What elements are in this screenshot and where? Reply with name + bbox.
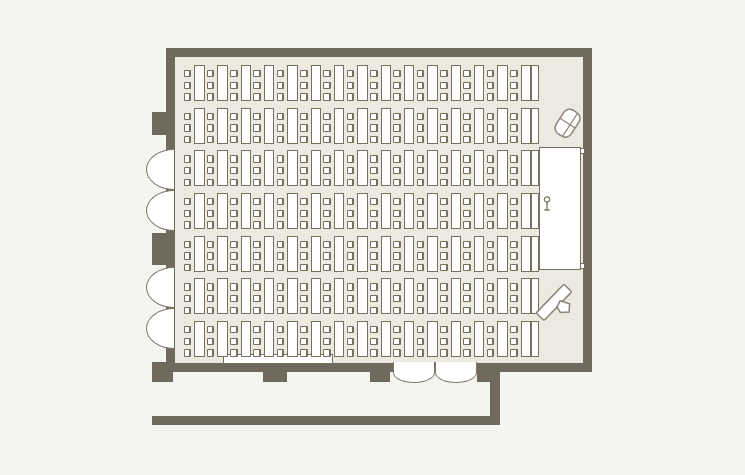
chair[interactable] bbox=[393, 210, 401, 217]
chair[interactable] bbox=[230, 167, 238, 174]
chair[interactable] bbox=[230, 113, 238, 120]
chair[interactable] bbox=[253, 307, 261, 314]
table[interactable] bbox=[451, 108, 462, 144]
chair[interactable] bbox=[277, 124, 285, 131]
table[interactable] bbox=[217, 321, 228, 357]
chair[interactable] bbox=[370, 124, 378, 131]
chair[interactable] bbox=[417, 241, 425, 248]
chair[interactable] bbox=[347, 82, 355, 89]
chair[interactable] bbox=[510, 136, 518, 143]
table[interactable] bbox=[427, 150, 438, 186]
chair[interactable] bbox=[370, 210, 378, 217]
projector-icon[interactable] bbox=[545, 102, 589, 146]
table[interactable] bbox=[311, 65, 322, 101]
chair[interactable] bbox=[510, 179, 518, 186]
chair[interactable] bbox=[300, 179, 308, 186]
chair[interactable] bbox=[184, 124, 192, 131]
chair[interactable] bbox=[440, 283, 448, 290]
table[interactable] bbox=[474, 150, 485, 186]
chair[interactable] bbox=[347, 198, 355, 205]
chair[interactable] bbox=[440, 82, 448, 89]
table[interactable] bbox=[474, 65, 485, 101]
chair[interactable] bbox=[184, 338, 192, 345]
chair[interactable] bbox=[184, 349, 192, 356]
chair[interactable] bbox=[277, 82, 285, 89]
chair[interactable] bbox=[463, 221, 471, 228]
table[interactable] bbox=[381, 193, 392, 229]
table[interactable] bbox=[381, 65, 392, 101]
chair[interactable] bbox=[184, 210, 192, 217]
chair[interactable] bbox=[253, 167, 261, 174]
chair[interactable] bbox=[230, 307, 238, 314]
chair[interactable] bbox=[347, 338, 355, 345]
chair[interactable] bbox=[463, 241, 471, 248]
chair[interactable] bbox=[207, 349, 215, 356]
chair[interactable] bbox=[463, 136, 471, 143]
table[interactable] bbox=[474, 278, 485, 314]
chair[interactable] bbox=[370, 167, 378, 174]
chair[interactable] bbox=[417, 167, 425, 174]
table[interactable] bbox=[451, 236, 462, 272]
chair[interactable] bbox=[300, 136, 308, 143]
chair[interactable] bbox=[440, 167, 448, 174]
chair[interactable] bbox=[253, 295, 261, 302]
chair[interactable] bbox=[253, 113, 261, 120]
chair[interactable] bbox=[417, 82, 425, 89]
table[interactable] bbox=[334, 193, 345, 229]
chair[interactable] bbox=[370, 338, 378, 345]
chair[interactable] bbox=[487, 198, 495, 205]
chair[interactable] bbox=[347, 210, 355, 217]
chair[interactable] bbox=[487, 241, 495, 248]
table[interactable] bbox=[334, 108, 345, 144]
chair[interactable] bbox=[253, 252, 261, 259]
chair[interactable] bbox=[417, 326, 425, 333]
chair[interactable] bbox=[440, 338, 448, 345]
chair[interactable] bbox=[207, 307, 215, 314]
chair[interactable] bbox=[370, 179, 378, 186]
chair[interactable] bbox=[253, 264, 261, 271]
chair[interactable] bbox=[510, 307, 518, 314]
chair[interactable] bbox=[300, 93, 308, 100]
chair[interactable] bbox=[300, 221, 308, 228]
chair[interactable] bbox=[487, 295, 495, 302]
chair[interactable] bbox=[463, 82, 471, 89]
chair[interactable] bbox=[230, 252, 238, 259]
chair[interactable] bbox=[347, 264, 355, 271]
chair[interactable] bbox=[370, 155, 378, 162]
chair[interactable] bbox=[253, 221, 261, 228]
table[interactable] bbox=[357, 236, 368, 272]
chair[interactable] bbox=[440, 124, 448, 131]
chair[interactable] bbox=[487, 113, 495, 120]
chair[interactable] bbox=[253, 70, 261, 77]
chair[interactable] bbox=[347, 349, 355, 356]
chair[interactable] bbox=[487, 264, 495, 271]
table[interactable] bbox=[311, 278, 322, 314]
chair[interactable] bbox=[323, 264, 331, 271]
chair[interactable] bbox=[463, 283, 471, 290]
table[interactable] bbox=[404, 321, 415, 357]
chair[interactable] bbox=[440, 179, 448, 186]
chair[interactable] bbox=[207, 179, 215, 186]
chair[interactable] bbox=[207, 264, 215, 271]
table[interactable] bbox=[194, 150, 205, 186]
chair[interactable] bbox=[510, 283, 518, 290]
table[interactable] bbox=[427, 321, 438, 357]
chair[interactable] bbox=[207, 167, 215, 174]
table[interactable] bbox=[334, 150, 345, 186]
chair[interactable] bbox=[323, 307, 331, 314]
chair[interactable] bbox=[323, 82, 331, 89]
chair[interactable] bbox=[323, 155, 331, 162]
chair[interactable] bbox=[300, 264, 308, 271]
chair[interactable] bbox=[487, 136, 495, 143]
chair[interactable] bbox=[510, 124, 518, 131]
table[interactable] bbox=[194, 278, 205, 314]
chair[interactable] bbox=[510, 338, 518, 345]
chair[interactable] bbox=[393, 70, 401, 77]
chair[interactable] bbox=[184, 198, 192, 205]
chair[interactable] bbox=[277, 167, 285, 174]
chair[interactable] bbox=[510, 167, 518, 174]
chair[interactable] bbox=[277, 93, 285, 100]
table[interactable] bbox=[287, 108, 298, 144]
chair[interactable] bbox=[323, 252, 331, 259]
chair[interactable] bbox=[440, 326, 448, 333]
chair[interactable] bbox=[300, 113, 308, 120]
table[interactable] bbox=[194, 65, 205, 101]
chair[interactable] bbox=[277, 221, 285, 228]
chair[interactable] bbox=[347, 307, 355, 314]
table[interactable] bbox=[404, 65, 415, 101]
chair[interactable] bbox=[487, 210, 495, 217]
table[interactable] bbox=[194, 236, 205, 272]
chair[interactable] bbox=[347, 155, 355, 162]
chair[interactable] bbox=[370, 198, 378, 205]
chair[interactable] bbox=[323, 198, 331, 205]
table[interactable] bbox=[497, 321, 508, 357]
chair[interactable] bbox=[417, 283, 425, 290]
chair[interactable] bbox=[277, 326, 285, 333]
chair[interactable] bbox=[487, 252, 495, 259]
chair[interactable] bbox=[300, 326, 308, 333]
chair[interactable] bbox=[393, 295, 401, 302]
chair[interactable] bbox=[323, 295, 331, 302]
table[interactable] bbox=[451, 321, 462, 357]
table[interactable] bbox=[497, 236, 508, 272]
chair[interactable] bbox=[230, 93, 238, 100]
table[interactable] bbox=[427, 278, 438, 314]
chair[interactable] bbox=[207, 124, 215, 131]
chair[interactable] bbox=[440, 241, 448, 248]
chair[interactable] bbox=[393, 93, 401, 100]
chair[interactable] bbox=[393, 198, 401, 205]
chair[interactable] bbox=[463, 264, 471, 271]
chair[interactable] bbox=[417, 295, 425, 302]
chair[interactable] bbox=[184, 179, 192, 186]
table[interactable] bbox=[287, 150, 298, 186]
table[interactable] bbox=[194, 193, 205, 229]
chair[interactable] bbox=[440, 93, 448, 100]
table[interactable] bbox=[334, 65, 345, 101]
chair[interactable] bbox=[207, 136, 215, 143]
table[interactable] bbox=[521, 321, 532, 357]
chair[interactable] bbox=[184, 136, 192, 143]
chair[interactable] bbox=[440, 155, 448, 162]
chair[interactable] bbox=[184, 326, 192, 333]
chair[interactable] bbox=[463, 295, 471, 302]
chair[interactable] bbox=[323, 326, 331, 333]
chair[interactable] bbox=[393, 349, 401, 356]
chair[interactable] bbox=[207, 155, 215, 162]
chair[interactable] bbox=[393, 264, 401, 271]
chair[interactable] bbox=[230, 221, 238, 228]
chair[interactable] bbox=[347, 167, 355, 174]
chair[interactable] bbox=[370, 136, 378, 143]
chair[interactable] bbox=[323, 124, 331, 131]
table[interactable] bbox=[264, 108, 275, 144]
chair[interactable] bbox=[347, 113, 355, 120]
chair[interactable] bbox=[393, 113, 401, 120]
chair[interactable] bbox=[370, 113, 378, 120]
chair[interactable] bbox=[253, 241, 261, 248]
table[interactable] bbox=[497, 278, 508, 314]
table[interactable] bbox=[381, 236, 392, 272]
chair[interactable] bbox=[253, 283, 261, 290]
table[interactable] bbox=[521, 150, 532, 186]
chair[interactable] bbox=[347, 136, 355, 143]
chair[interactable] bbox=[230, 338, 238, 345]
chair[interactable] bbox=[370, 252, 378, 259]
chair[interactable] bbox=[253, 326, 261, 333]
chair[interactable] bbox=[463, 179, 471, 186]
chair[interactable] bbox=[184, 155, 192, 162]
table[interactable] bbox=[241, 150, 252, 186]
chair[interactable] bbox=[347, 124, 355, 131]
table[interactable] bbox=[217, 278, 228, 314]
chair[interactable] bbox=[253, 198, 261, 205]
table[interactable] bbox=[217, 108, 228, 144]
chair[interactable] bbox=[417, 198, 425, 205]
chair[interactable] bbox=[440, 295, 448, 302]
chair[interactable] bbox=[230, 295, 238, 302]
table[interactable] bbox=[357, 278, 368, 314]
chair[interactable] bbox=[463, 167, 471, 174]
projection-screen-icon[interactable] bbox=[531, 278, 583, 324]
chair[interactable] bbox=[463, 349, 471, 356]
table[interactable] bbox=[451, 193, 462, 229]
chair[interactable] bbox=[253, 210, 261, 217]
chair[interactable] bbox=[277, 264, 285, 271]
chair[interactable] bbox=[393, 241, 401, 248]
chair[interactable] bbox=[300, 349, 308, 356]
chair[interactable] bbox=[277, 70, 285, 77]
chair[interactable] bbox=[510, 113, 518, 120]
table[interactable] bbox=[404, 150, 415, 186]
table[interactable] bbox=[451, 150, 462, 186]
chair[interactable] bbox=[230, 82, 238, 89]
chair[interactable] bbox=[347, 93, 355, 100]
chair[interactable] bbox=[487, 70, 495, 77]
chair[interactable] bbox=[440, 252, 448, 259]
chair[interactable] bbox=[184, 82, 192, 89]
table[interactable] bbox=[427, 65, 438, 101]
table[interactable] bbox=[474, 236, 485, 272]
chair[interactable] bbox=[510, 93, 518, 100]
chair[interactable] bbox=[230, 349, 238, 356]
chair[interactable] bbox=[510, 241, 518, 248]
chair[interactable] bbox=[300, 124, 308, 131]
table[interactable] bbox=[241, 236, 252, 272]
table[interactable] bbox=[521, 65, 532, 101]
chair[interactable] bbox=[463, 307, 471, 314]
chair[interactable] bbox=[393, 179, 401, 186]
chair[interactable] bbox=[207, 221, 215, 228]
chair[interactable] bbox=[463, 326, 471, 333]
table[interactable] bbox=[427, 193, 438, 229]
chair[interactable] bbox=[417, 155, 425, 162]
chair[interactable] bbox=[463, 93, 471, 100]
table[interactable] bbox=[357, 65, 368, 101]
chair[interactable] bbox=[393, 82, 401, 89]
table[interactable] bbox=[241, 278, 252, 314]
chair[interactable] bbox=[370, 221, 378, 228]
chair[interactable] bbox=[300, 283, 308, 290]
table[interactable] bbox=[497, 108, 508, 144]
chair[interactable] bbox=[277, 210, 285, 217]
chair[interactable] bbox=[510, 326, 518, 333]
chair[interactable] bbox=[207, 241, 215, 248]
table[interactable] bbox=[287, 321, 298, 357]
chair[interactable] bbox=[440, 221, 448, 228]
chair[interactable] bbox=[230, 124, 238, 131]
chair[interactable] bbox=[277, 295, 285, 302]
chair[interactable] bbox=[347, 179, 355, 186]
chair[interactable] bbox=[487, 349, 495, 356]
chair[interactable] bbox=[510, 155, 518, 162]
chair[interactable] bbox=[370, 264, 378, 271]
chair[interactable] bbox=[230, 70, 238, 77]
chair[interactable] bbox=[347, 70, 355, 77]
chair[interactable] bbox=[207, 295, 215, 302]
chair[interactable] bbox=[253, 155, 261, 162]
table[interactable] bbox=[474, 321, 485, 357]
chair[interactable] bbox=[417, 307, 425, 314]
chair[interactable] bbox=[487, 179, 495, 186]
chair[interactable] bbox=[323, 93, 331, 100]
chair[interactable] bbox=[300, 82, 308, 89]
table[interactable] bbox=[531, 108, 539, 144]
chair[interactable] bbox=[230, 283, 238, 290]
chair[interactable] bbox=[323, 221, 331, 228]
table[interactable] bbox=[381, 321, 392, 357]
chair[interactable] bbox=[487, 155, 495, 162]
chair[interactable] bbox=[510, 349, 518, 356]
chair[interactable] bbox=[184, 307, 192, 314]
table[interactable] bbox=[531, 65, 539, 101]
table[interactable] bbox=[334, 278, 345, 314]
chair[interactable] bbox=[463, 124, 471, 131]
chair[interactable] bbox=[323, 113, 331, 120]
chair[interactable] bbox=[207, 283, 215, 290]
chair[interactable] bbox=[253, 93, 261, 100]
chair[interactable] bbox=[510, 252, 518, 259]
chair[interactable] bbox=[323, 283, 331, 290]
table[interactable] bbox=[264, 150, 275, 186]
table[interactable] bbox=[311, 193, 322, 229]
table[interactable] bbox=[404, 236, 415, 272]
chair[interactable] bbox=[207, 338, 215, 345]
table[interactable] bbox=[427, 236, 438, 272]
table[interactable] bbox=[521, 193, 532, 229]
table[interactable] bbox=[404, 108, 415, 144]
chair[interactable] bbox=[323, 241, 331, 248]
table[interactable] bbox=[287, 236, 298, 272]
table[interactable] bbox=[241, 65, 252, 101]
table[interactable] bbox=[194, 321, 205, 357]
chair[interactable] bbox=[277, 307, 285, 314]
chair[interactable] bbox=[253, 82, 261, 89]
chair[interactable] bbox=[393, 221, 401, 228]
table[interactable] bbox=[287, 65, 298, 101]
table[interactable] bbox=[427, 108, 438, 144]
chair[interactable] bbox=[393, 252, 401, 259]
table[interactable] bbox=[334, 236, 345, 272]
chair[interactable] bbox=[277, 338, 285, 345]
table[interactable] bbox=[241, 108, 252, 144]
chair[interactable] bbox=[417, 179, 425, 186]
chair[interactable] bbox=[440, 349, 448, 356]
chair[interactable] bbox=[207, 113, 215, 120]
table[interactable] bbox=[357, 108, 368, 144]
chair[interactable] bbox=[347, 241, 355, 248]
chair[interactable] bbox=[370, 283, 378, 290]
chair[interactable] bbox=[184, 221, 192, 228]
table[interactable] bbox=[357, 193, 368, 229]
chair[interactable] bbox=[463, 338, 471, 345]
chair[interactable] bbox=[323, 210, 331, 217]
chair[interactable] bbox=[277, 349, 285, 356]
chair[interactable] bbox=[300, 198, 308, 205]
chair[interactable] bbox=[230, 210, 238, 217]
table[interactable] bbox=[404, 193, 415, 229]
chair[interactable] bbox=[417, 338, 425, 345]
chair[interactable] bbox=[463, 70, 471, 77]
chair[interactable] bbox=[277, 113, 285, 120]
table[interactable] bbox=[497, 193, 508, 229]
chair[interactable] bbox=[487, 167, 495, 174]
chair[interactable] bbox=[510, 82, 518, 89]
chair[interactable] bbox=[370, 82, 378, 89]
chair[interactable] bbox=[417, 113, 425, 120]
chair[interactable] bbox=[184, 295, 192, 302]
table[interactable] bbox=[381, 108, 392, 144]
chair[interactable] bbox=[463, 113, 471, 120]
table[interactable] bbox=[287, 193, 298, 229]
table[interactable] bbox=[404, 278, 415, 314]
chair[interactable] bbox=[184, 167, 192, 174]
chair[interactable] bbox=[393, 124, 401, 131]
chair[interactable] bbox=[463, 198, 471, 205]
table[interactable] bbox=[241, 321, 252, 357]
chair[interactable] bbox=[277, 283, 285, 290]
chair[interactable] bbox=[417, 136, 425, 143]
chair[interactable] bbox=[300, 338, 308, 345]
chair[interactable] bbox=[393, 326, 401, 333]
chair[interactable] bbox=[440, 307, 448, 314]
table[interactable] bbox=[334, 321, 345, 357]
